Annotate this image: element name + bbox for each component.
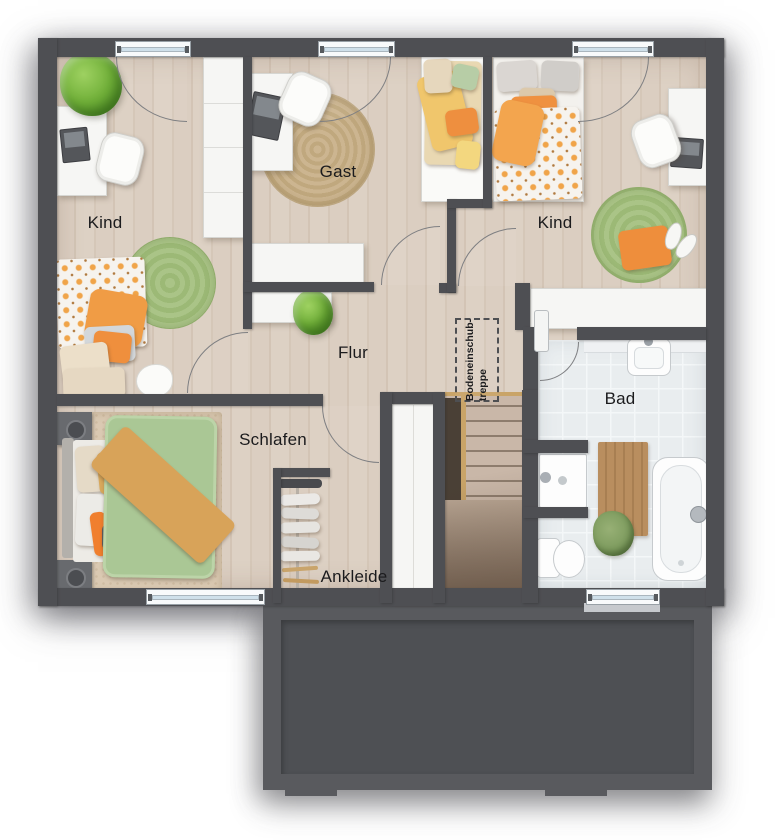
pillow (423, 58, 453, 93)
room-label-kind-right: Kind (538, 213, 573, 233)
shower-head (540, 472, 551, 483)
stair-shading (443, 392, 522, 590)
door-leaf (534, 310, 549, 352)
window (146, 589, 265, 605)
roof-tab (545, 790, 607, 796)
room-label-ankleide: Ankleide (321, 567, 388, 587)
hanging-clothes (281, 536, 320, 549)
room-label-flur: Flur (338, 343, 368, 363)
toilet-bowl (553, 540, 585, 578)
floor-cushion (617, 225, 672, 272)
double-bed (70, 414, 220, 586)
window (586, 589, 660, 605)
bed (493, 57, 584, 202)
attic-hatch-label: Bodeneinschub- treppe (464, 319, 490, 401)
shower-enclosure-wall (523, 440, 588, 453)
room-label-schlafen: Schlafen (239, 430, 307, 450)
pillow (455, 140, 482, 170)
roof-below (263, 603, 712, 790)
interior-wall (522, 390, 538, 603)
sideboard (248, 243, 364, 285)
side-table (136, 364, 173, 397)
attic-hatch-outline: Bodeneinschub- treppe (455, 318, 499, 402)
bed (421, 56, 487, 202)
bathtub (652, 457, 710, 581)
interior-wall (577, 327, 706, 340)
room-label-kind-left: Kind (88, 213, 123, 233)
pillow (540, 60, 580, 92)
shower-enclosure-wall (523, 507, 588, 518)
bathtub-drain (678, 560, 684, 566)
hanging-clothes (280, 551, 320, 562)
exterior-wall-right (706, 38, 724, 606)
bed (57, 256, 148, 402)
bathtub-faucet (690, 506, 707, 523)
roof-tab (285, 790, 337, 796)
room-label-bad: Bad (605, 389, 636, 409)
towel-pile (593, 511, 634, 556)
sink-basin (634, 347, 664, 369)
exterior-wall-left (38, 38, 57, 606)
interior-wall (273, 468, 281, 603)
plant (60, 52, 122, 116)
interior-wall (273, 468, 330, 477)
interior-wall (483, 57, 492, 208)
roof-inner-panel (281, 620, 694, 774)
interior-wall (433, 392, 445, 603)
sink (627, 338, 671, 376)
interior-wall (243, 282, 374, 292)
pillow (444, 107, 479, 137)
interior-wall (515, 283, 530, 330)
interior-wall (57, 394, 323, 406)
floorplan-page: Bodeneinschub- treppe (0, 0, 775, 840)
room-label-gast: Gast (320, 162, 357, 182)
closet-rod (278, 479, 322, 488)
shower-drain (558, 476, 567, 485)
wardrobe (203, 57, 245, 238)
hanging-clothes (280, 493, 321, 506)
interior-wall (447, 199, 456, 292)
wardrobe (392, 404, 435, 599)
sideboard (530, 288, 708, 329)
hanging-clothes (280, 521, 320, 533)
pillow (450, 63, 480, 92)
window (318, 41, 395, 57)
laptop (59, 127, 90, 164)
window (115, 41, 191, 57)
staircase (443, 392, 522, 590)
plant (293, 290, 333, 335)
window (572, 41, 654, 57)
hanging-clothes (281, 507, 319, 519)
